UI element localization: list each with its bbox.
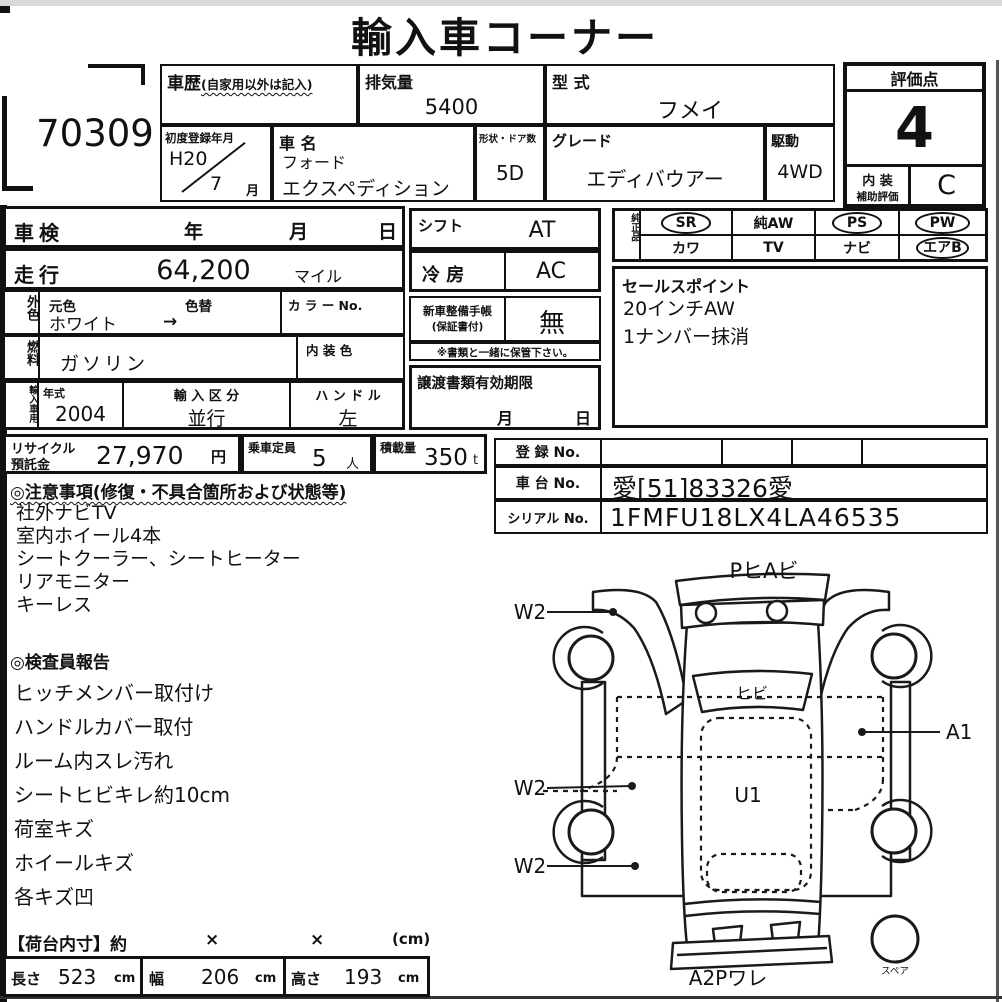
import-handle-label: ハ ン ド ル (291, 385, 405, 404)
diagram-w2-lower: W2 (514, 854, 547, 878)
service-book-note-text: ※書類と一緒に保管下さい。 (411, 345, 599, 360)
left-front-wheel (569, 636, 613, 680)
transfer-box: 譲渡書類有効期限 月 日 (409, 365, 601, 430)
repaint-label: 色替 (185, 295, 212, 315)
notes-header: ◎注意事項(修復・不具合箇所および状態等) (10, 478, 346, 503)
capacity-value: 5 (312, 446, 327, 472)
equipment-pw: PW (900, 211, 985, 234)
mileage-label: 走行 (14, 259, 64, 288)
load-unit: t (473, 453, 478, 468)
reg-no-cell-2 (723, 440, 793, 464)
cargo-unit-note: (cm) (392, 930, 430, 948)
interior-color-label: 内 装 色 (306, 340, 352, 359)
mileage-unit: マイル (294, 263, 342, 287)
drive-label: 駆動 (771, 131, 799, 151)
import-year-cell: 年式 2004 (39, 383, 124, 427)
grade-label: グレード (552, 130, 612, 151)
color-no-label: カ ラ ー No. (288, 295, 362, 314)
transfer-label: 譲渡書類有効期限 (417, 372, 533, 393)
list-item: ホイールキズ (14, 846, 230, 880)
cargo-width-unit: cm (255, 971, 276, 986)
transfer-month: 月 (497, 405, 513, 429)
list-item: 荷室キズ (14, 812, 230, 846)
right-front-wheel (872, 634, 916, 678)
aircon-label: 冷 房 (422, 261, 464, 287)
doors-box: 形状・ドア数 5D (475, 125, 545, 202)
first-reg-month: 7 (210, 173, 222, 195)
doors-label: 形状・ドア数 (479, 131, 536, 145)
shaken-year: 年 (184, 217, 203, 244)
repaint-arrow: → (163, 312, 177, 332)
capacity-box: 乗車定員 5 人 (241, 434, 373, 474)
list-item: ハンドルカバー取付 (14, 710, 230, 744)
list-item: 室内ホイール4本 (16, 525, 301, 548)
equipment-sr-label: SR (661, 212, 712, 234)
interior-color-cell: 内 装 色 (296, 337, 404, 378)
cargo-header-row: 【荷台内寸】約 × × (cm) (8, 930, 428, 952)
serial-no-row: シリアル No. 1FMFU18LX4LA46535 (494, 500, 988, 534)
report-header: ◎検査員報告 (10, 648, 110, 673)
cargo-x2: × (310, 930, 324, 950)
shift-box: シフト AT (409, 208, 601, 250)
aircon-value: AC (504, 259, 598, 284)
color-no-cell: カ ラ ー No. (280, 292, 404, 333)
report-list: ヒッチメンバー取付けハンドルカバー取付ルーム内スレ汚れシートヒビキレ約10cm荷… (14, 676, 230, 914)
doors-value: 5D (477, 161, 543, 185)
drive-value: 4WD (767, 161, 833, 183)
recycle-box: リサイクル 預託金 27,970 円 (3, 434, 241, 474)
cargo-length-value: 523 (58, 965, 96, 989)
equipment-box: 純正品 SR 純AW PS PW カワ TV ナビ エアB (612, 208, 988, 262)
interior-label-top: 内 装 (847, 170, 908, 189)
equipment-leather: カワ (641, 236, 733, 259)
cargo-width-label: 幅 (149, 968, 164, 989)
shaken-month: 月 (289, 217, 308, 244)
maker-value: フォード (282, 149, 346, 173)
sales-points-label: セールスポイント (622, 273, 750, 297)
list-item: リアモニター (16, 571, 301, 594)
equipment-leather-label: カワ (672, 238, 700, 258)
history-box: 車歴(自家用以外は記入) (160, 64, 358, 125)
reg-no-row: 登 録 No. (494, 438, 988, 466)
reg-no-cell-3 (793, 440, 863, 464)
displacement-label: 排気量 (365, 69, 413, 93)
import-year-label: 年式 (43, 385, 65, 401)
reg-no-label: 登 録 No. (496, 440, 602, 464)
mileage-row: 走行 64,200 マイル (3, 248, 405, 290)
sales-points-list: 20インチAW1ナンバー抹消 (623, 295, 749, 351)
cargo-width-value: 206 (201, 965, 239, 989)
equipment-row-1: SR 純AW PS PW (641, 211, 985, 236)
cargo-length-cell: 長さ 523 cm (6, 959, 143, 994)
list-item: ヒッチメンバー取付け (14, 676, 230, 710)
displacement-box: 排気量 5400 (358, 64, 545, 125)
first-reg-box: 初度登録年月 H20 7 月 (160, 125, 272, 202)
import-label: 輸入車用 (6, 383, 39, 427)
diagram-w2-upper: W2 (514, 600, 547, 624)
rating-box: 評価点 4 内 装 補助評価 C (843, 62, 986, 208)
equipment-airbag-label: エアB (916, 237, 969, 259)
shift-label: シフト (418, 215, 463, 236)
shaken-row: 車検 年 月 日 (3, 206, 405, 248)
shaken-label: 車検 (14, 217, 64, 246)
equipment-navi: ナビ (816, 236, 900, 259)
equipment-tv-label: TV (763, 240, 783, 256)
sales-points-box: セールスポイント 20インチAW1ナンバー抹消 (612, 266, 988, 428)
serial-no-value: 1FMFU18LX4LA46535 (602, 502, 986, 532)
list-item: ルーム内スレ汚れ (14, 744, 230, 778)
service-book-note: ※書類と一緒に保管下さい。 (409, 342, 601, 361)
grade-value: エディバウアー (547, 163, 763, 192)
list-item: シートクーラー、シートヒーター (16, 548, 301, 571)
cargo-width-cell: 幅 206 cm (143, 959, 286, 994)
cargo-table: 長さ 523 cm 幅 206 cm 高さ 193 cm (3, 956, 430, 997)
equipment-row-2: カワ TV ナビ エアB (641, 236, 985, 259)
lot-number: 70309 (30, 112, 160, 155)
model-value: エクスペディション (282, 174, 450, 201)
grade-box: グレード エディバウアー (545, 125, 765, 202)
diagram-spare-label: スペア (881, 966, 909, 977)
load-box: 積載量 350 t (373, 434, 487, 474)
diagram-top-label: PヒAビ (729, 559, 798, 583)
displacement-value: 5400 (360, 95, 543, 119)
front-band-circle-left (696, 603, 716, 623)
front-band-circle-right (767, 601, 787, 621)
diagram-bottom-label: A2Pワレ (689, 966, 767, 990)
exterior-label: 外色 (5, 292, 40, 333)
import-handle-cell: ハ ン ド ル 左 (291, 383, 405, 427)
recycle-value: 27,970 (96, 441, 183, 470)
cargo-height-value: 193 (344, 965, 382, 989)
interior-label-bottom: 補助評価 (847, 189, 908, 204)
page-title: 輸入車コーナー (300, 4, 710, 64)
model-code-label: 型 式 (552, 69, 590, 93)
cargo-header: 【荷台内寸】約 (8, 930, 127, 955)
import-class-cell: 輸 入 区 分 並行 (124, 383, 291, 427)
transfer-day: 日 (575, 405, 591, 429)
exterior-color-value: ホワイト (49, 310, 117, 335)
equipment-label: 純正品 (615, 211, 641, 259)
exterior-row: 外色 元色 色替 ホワイト → カ ラ ー No. (3, 290, 405, 335)
chassis-no-label: 車 台 No. (496, 468, 602, 498)
first-reg-year: H20 (169, 148, 207, 170)
left-rear-wheel (569, 810, 613, 854)
auction-sheet: 輸入車コーナー 70309 車歴(自家用以外は記入) 排気量 5400 型 式 … (0, 0, 1002, 1002)
cargo-length-label: 長さ (11, 968, 41, 989)
fuel-value: ガソリン (60, 349, 148, 376)
history-label: 車歴 (167, 74, 201, 94)
reg-no-cell-1 (602, 440, 723, 464)
model-code-box: 型 式 フメイ (545, 64, 835, 125)
chassis-no-row: 車 台 No. 愛[51]83326愛 (494, 466, 988, 500)
import-class-value: 並行 (124, 404, 289, 431)
diagram-a1-label: A1 (946, 720, 972, 744)
equipment-airbag: エアB (900, 236, 985, 259)
load-label: 積載量 (380, 439, 416, 456)
drive-box: 駆動 4WD (765, 125, 835, 202)
cargo-height-cell: 高さ 193 cm (286, 959, 427, 994)
notes-list: 社外ナビTV室内ホイール4本シートクーラー、シートヒーターリアモニターキーレス (16, 502, 301, 617)
crop-mark-left (2, 96, 33, 191)
capacity-unit: 人 (346, 453, 359, 472)
cargo-x1: × (205, 930, 219, 950)
load-value: 350 (424, 445, 468, 471)
reg-no-cell-4 (863, 440, 986, 464)
service-book-value: 無 (506, 303, 598, 340)
right-rear-wheel (872, 809, 916, 853)
fuel-label: 燃料 (5, 337, 40, 378)
service-book-label-2: (保証書付) (411, 319, 504, 334)
interior-grade: C (911, 167, 982, 204)
capacity-label: 乗車定員 (248, 439, 296, 456)
first-reg-label: 初度登録年月 (165, 130, 234, 146)
service-book-label-cell: 新車整備手帳 (保証書付) (411, 298, 506, 340)
crop-mark-top (88, 64, 145, 85)
rating-bottom-row: 内 装 補助評価 C (847, 164, 982, 204)
rating-score: 4 (847, 92, 982, 164)
import-class-label: 輸 入 区 分 (124, 385, 289, 404)
diagram-windshield-label: ヒビ (736, 684, 768, 703)
equipment-tv: TV (733, 236, 816, 259)
left-panel-bottom (582, 856, 689, 896)
import-row: 輸入車用 年式 2004 輸 入 区 分 並行 ハ ン ド ル 左 (3, 380, 405, 430)
recycle-label-2: 預託金 (11, 454, 50, 473)
diagram-w2-middle: W2 (514, 776, 547, 800)
equipment-pw-label: PW (915, 212, 971, 234)
month-suffix: 月 (246, 180, 259, 199)
interior-rating-label: 内 装 補助評価 (847, 167, 911, 204)
list-item: 社外ナビTV (16, 502, 301, 525)
list-item: 1ナンバー抹消 (623, 323, 749, 351)
diagram-u1-label: U1 (734, 783, 761, 807)
equipment-ps: PS (816, 211, 900, 234)
rating-score-label: 評価点 (847, 66, 982, 92)
import-year-value: 2004 (39, 402, 122, 426)
cargo-height-unit: cm (398, 971, 419, 986)
equipment-ps-label: PS (832, 212, 882, 234)
import-handle-value: 左 (291, 404, 405, 431)
equipment-aw: 純AW (733, 211, 816, 234)
service-book-label-1: 新車整備手帳 (411, 303, 504, 319)
shaken-day: 日 (378, 217, 397, 244)
aircon-box: 冷 房 AC (409, 250, 601, 292)
mileage-value: 64,200 (121, 255, 286, 286)
cargo-length-unit: cm (114, 971, 135, 986)
damage-diagram: PヒAビ W2 ヒビ A1 W2 U1 W2 A2Pワレ スペア (430, 548, 1002, 1002)
car-name-box: 車 名 フォード エクスペディション (272, 125, 475, 202)
recycle-unit: 円 (211, 446, 226, 467)
serial-no-label: シリアル No. (496, 502, 602, 532)
equipment-aw-label: 純AW (754, 213, 794, 233)
chassis-no-value: 愛[51]83326愛 (602, 468, 986, 498)
service-book-box: 新車整備手帳 (保証書付) 無 (409, 296, 601, 342)
shift-value: AT (502, 218, 582, 243)
list-item: シートヒビキレ約10cm (14, 778, 230, 812)
equipment-navi-label: ナビ (843, 238, 871, 258)
cargo-height-label: 高さ (291, 968, 321, 989)
equipment-grid: SR 純AW PS PW カワ TV ナビ エアB (641, 211, 985, 259)
list-item: 各キズ凹 (14, 880, 230, 914)
history-note: (自家用以外は記入) (201, 77, 312, 92)
equipment-sr: SR (641, 211, 733, 234)
list-item: キーレス (16, 594, 301, 617)
spare-wheel (872, 916, 918, 962)
fuel-row: 燃料 ガソリン 内 装 色 (3, 335, 405, 380)
model-code-value: フメイ (547, 93, 833, 125)
list-item: 20インチAW (623, 295, 749, 323)
